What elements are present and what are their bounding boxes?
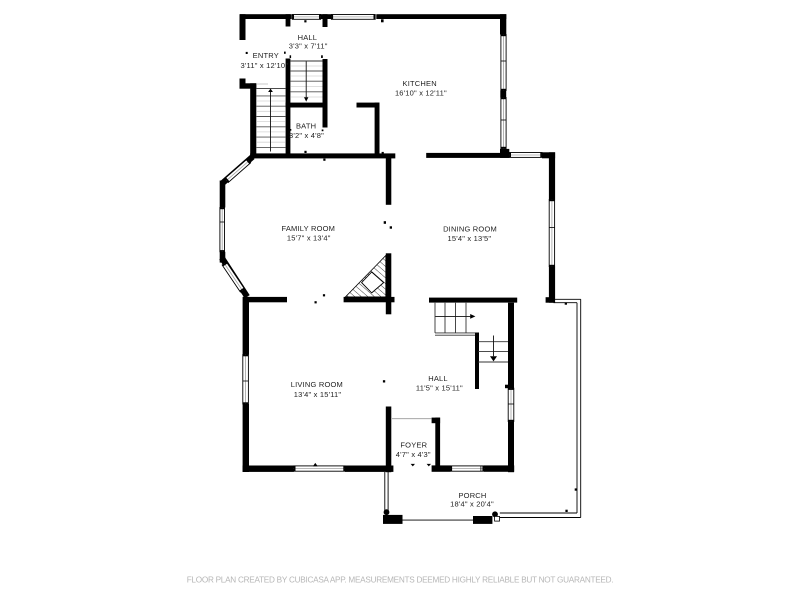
svg-text:ENTRY: ENTRY bbox=[253, 51, 279, 60]
svg-text:13'4" x 15'11": 13'4" x 15'11" bbox=[294, 390, 342, 399]
svg-text:3'3" x 7'11": 3'3" x 7'11" bbox=[289, 42, 328, 51]
svg-text:15'7" x 13'4": 15'7" x 13'4" bbox=[287, 234, 331, 243]
svg-text:BATH: BATH bbox=[296, 121, 316, 130]
svg-text:11'5" x 15'11": 11'5" x 15'11" bbox=[416, 383, 463, 392]
svg-text:16'10" x 12'11": 16'10" x 12'11" bbox=[395, 89, 447, 98]
svg-text:3'11" x 12'10": 3'11" x 12'10" bbox=[241, 61, 289, 70]
svg-text:FAMILY ROOM: FAMILY ROOM bbox=[281, 224, 335, 233]
svg-text:PORCH: PORCH bbox=[458, 491, 486, 500]
svg-text:3'2" x 4'8": 3'2" x 4'8" bbox=[289, 131, 324, 140]
svg-text:DINING ROOM: DINING ROOM bbox=[443, 225, 497, 234]
svg-text:18'4" x 20'4": 18'4" x 20'4" bbox=[450, 500, 494, 509]
svg-text:HALL: HALL bbox=[428, 374, 448, 383]
svg-text:KITCHEN: KITCHEN bbox=[403, 79, 437, 88]
svg-text:FOYER: FOYER bbox=[400, 441, 427, 450]
svg-text:FLOOR PLAN CREATED BY CUBICASA: FLOOR PLAN CREATED BY CUBICASA APP. MEAS… bbox=[187, 576, 614, 585]
svg-text:LIVING ROOM: LIVING ROOM bbox=[291, 380, 343, 389]
svg-text:4'7" x 4'3": 4'7" x 4'3" bbox=[396, 450, 431, 459]
svg-text:15'4" x 13'5": 15'4" x 13'5" bbox=[448, 234, 492, 243]
